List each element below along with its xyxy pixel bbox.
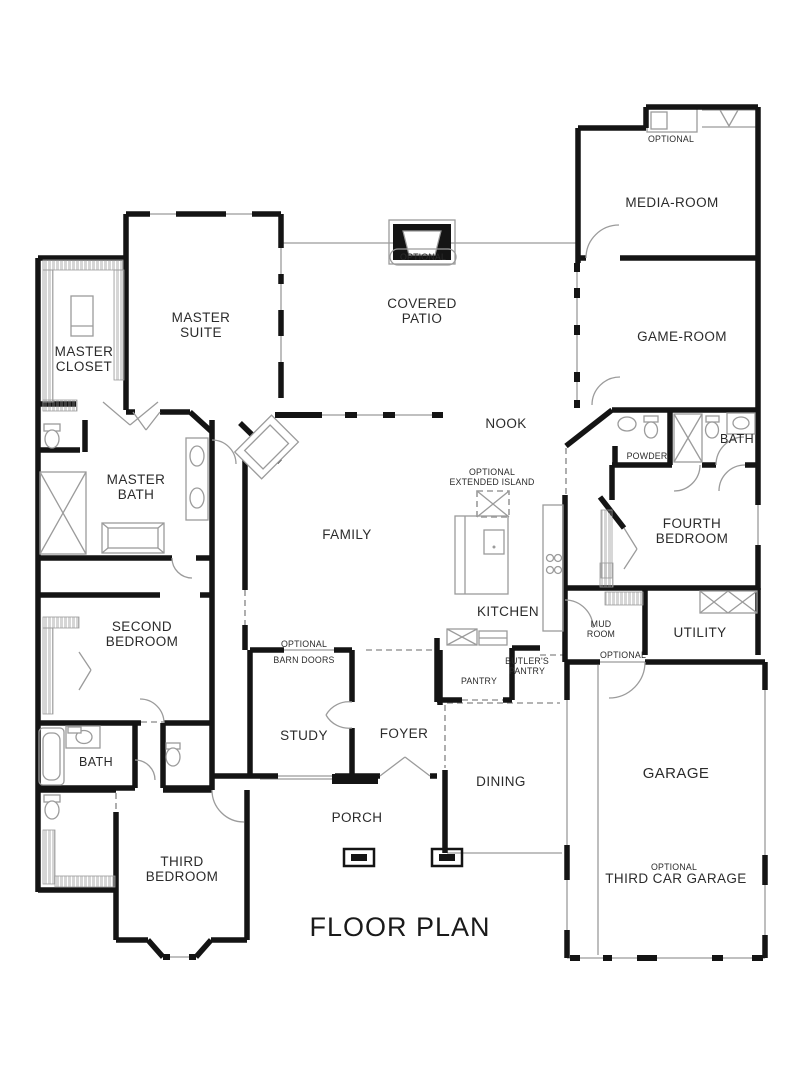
dashed-openings: [116, 448, 566, 811]
label-bath-left: BATH: [79, 755, 113, 769]
label-covered-patio-2: PATIO: [402, 311, 443, 326]
label-garage: GARAGE: [643, 765, 710, 782]
label-family: FAMILY: [322, 527, 371, 542]
label-study: STUDY: [280, 728, 328, 743]
page-title: FLOOR PLAN: [309, 912, 490, 942]
label-fourth-bedroom-1: FOURTH: [663, 516, 721, 531]
label-second-bedroom-2: BEDROOM: [106, 634, 179, 649]
fixtures: [39, 220, 757, 887]
label-barn-doors-1: OPTIONAL: [281, 639, 327, 649]
label-master-suite-1: MASTER: [172, 310, 231, 325]
label-nook: NOOK: [485, 416, 526, 431]
label-third-bedroom-1: THIRD: [160, 854, 203, 869]
label-butlers-pantry-1: BUTLER'S: [505, 656, 549, 666]
label-dining: DINING: [476, 774, 526, 789]
label-island-optional-2: EXTENDED ISLAND: [449, 477, 534, 487]
label-mud-room-2: ROOM: [587, 629, 615, 639]
label-media-optional: OPTIONAL: [648, 134, 694, 144]
label-porch: PORCH: [332, 810, 383, 825]
label-master-closet-2: CLOSET: [56, 359, 112, 374]
label-fourth-bedroom-2: BEDROOM: [656, 531, 729, 546]
label-master-closet-1: MASTER: [55, 344, 114, 359]
label-game-room: GAME-ROOM: [637, 329, 727, 344]
label-master-bath-2: BATH: [118, 487, 155, 502]
label-powder: POWDER: [627, 451, 668, 461]
label-bath-right: BATH: [720, 432, 754, 446]
label-patio-optional: OPTIONAL: [400, 252, 446, 262]
label-butlers-pantry-2: PANTRY: [509, 666, 545, 676]
label-covered-patio-1: COVERED: [387, 296, 457, 311]
label-second-bedroom-1: SECOND: [112, 619, 172, 634]
label-media-room: MEDIA-ROOM: [625, 195, 718, 210]
label-mud-optional: OPTIONAL: [600, 650, 646, 660]
label-master-bath-1: MASTER: [107, 472, 166, 487]
labels: OPTIONAL MEDIA-ROOM OPTIONAL COVERED PAT…: [55, 134, 754, 942]
label-mud-room-1: MUD: [591, 619, 612, 629]
label-master-suite-2: SUITE: [180, 325, 222, 340]
label-pantry: PANTRY: [461, 676, 497, 686]
label-barn-doors-2: BARN DOORS: [273, 655, 334, 665]
label-third-bedroom-2: BEDROOM: [146, 869, 219, 884]
floor-plan-canvas: OPTIONAL MEDIA-ROOM OPTIONAL COVERED PAT…: [0, 0, 800, 1067]
label-third-car-garage-2: THIRD CAR GARAGE: [605, 871, 746, 886]
label-utility: UTILITY: [673, 625, 726, 640]
label-island-optional-1: OPTIONAL: [469, 467, 515, 477]
label-foyer: FOYER: [380, 726, 429, 741]
floor-plan: OPTIONAL MEDIA-ROOM OPTIONAL COVERED PAT…: [0, 0, 800, 1067]
label-kitchen: KITCHEN: [477, 604, 539, 619]
